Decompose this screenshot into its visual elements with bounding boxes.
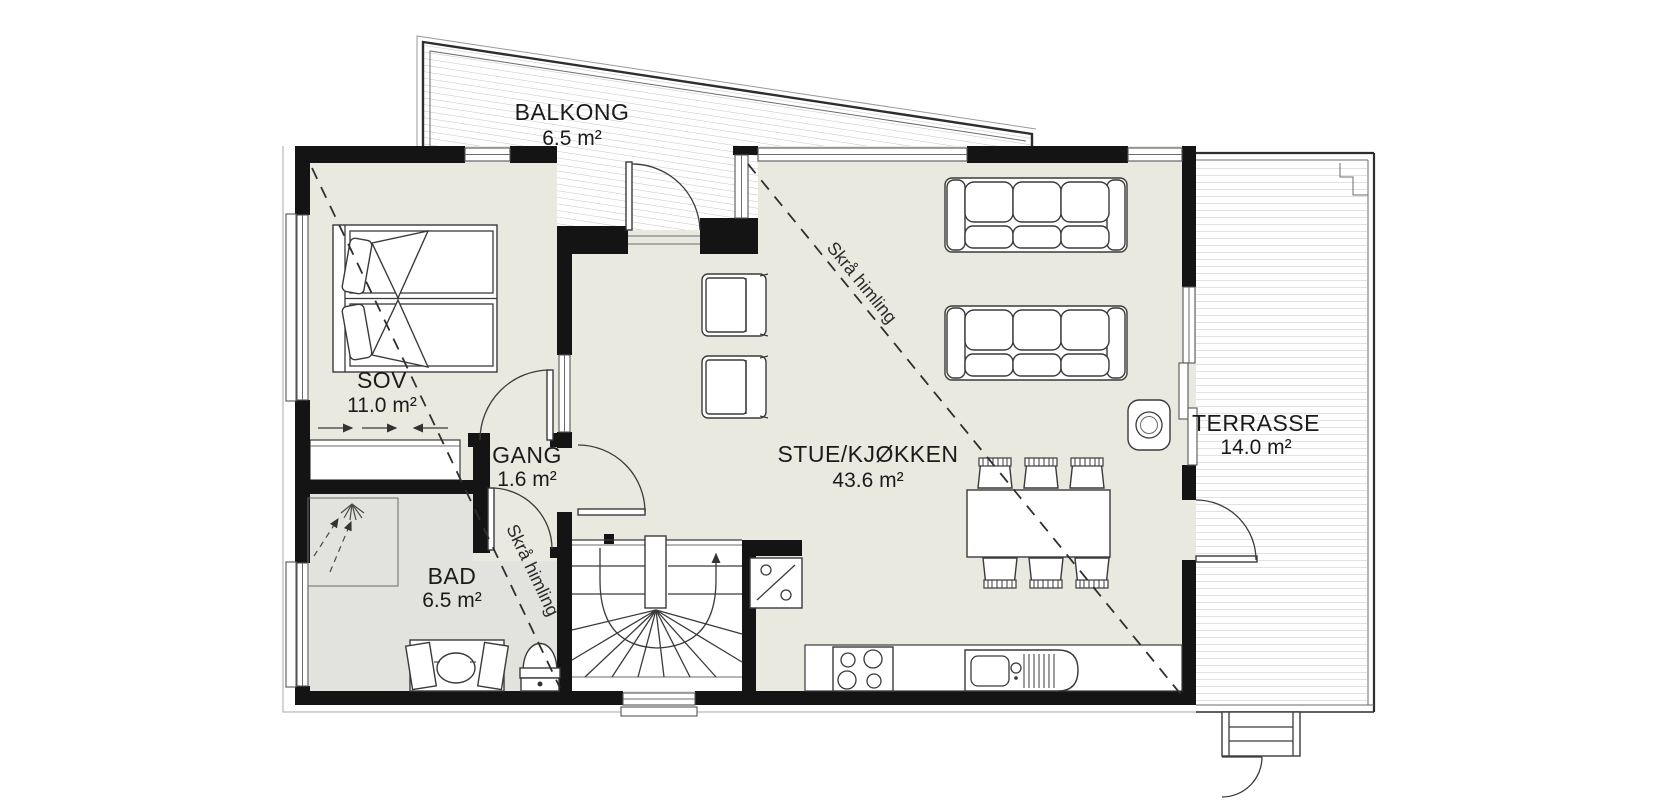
area-terrasse: 14.0 m² (1220, 436, 1291, 459)
armchair-1 (702, 274, 768, 336)
label-sov: SOV (357, 367, 407, 393)
sofa-2 (945, 306, 1127, 380)
terrace (1196, 153, 1374, 797)
kitchen-sink (965, 650, 1078, 691)
kitchen-appliance (750, 558, 802, 608)
area-bad: 6.5 m² (422, 589, 482, 612)
armchair-2 (702, 356, 768, 418)
sofa-1 (945, 178, 1127, 252)
floor-plan: BALKONG 6.5 m² SOV 11.0 m² GANG 1.6 m² B… (0, 0, 1670, 800)
area-gang: 1.6 m² (497, 468, 557, 491)
double-bed (333, 225, 497, 372)
bathroom-vanity (406, 640, 509, 691)
label-balkong: BALKONG (515, 99, 630, 125)
label-bad: BAD (428, 563, 477, 589)
floor-plan-page: BALKONG 6.5 m² SOV 11.0 m² GANG 1.6 m² B… (0, 0, 1670, 800)
area-stue-kjokken: 43.6 m² (832, 469, 903, 492)
label-gang: GANG (492, 442, 562, 468)
label-terrasse: TERRASSE (1192, 410, 1320, 436)
wood-stove (1128, 400, 1170, 450)
dining-table (967, 490, 1110, 557)
dining-set (967, 458, 1110, 588)
terrace-stairs (1222, 712, 1300, 797)
area-balkong: 6.5 m² (542, 127, 602, 150)
label-stue-kjokken: STUE/KJØKKEN (777, 441, 958, 467)
area-sov: 11.0 m² (347, 394, 417, 417)
cooktop (833, 647, 893, 691)
